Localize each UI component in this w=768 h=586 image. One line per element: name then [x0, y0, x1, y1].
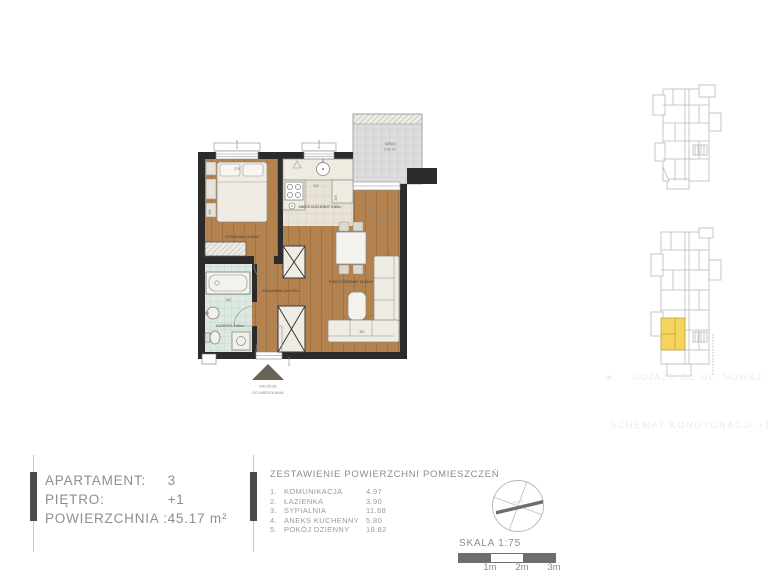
row-no: 3.	[270, 506, 284, 516]
entrance-arrow-icon	[252, 364, 284, 380]
row-no: 5.	[270, 525, 284, 535]
scale-bar	[458, 553, 556, 563]
dim-bedroom-w: 275	[234, 167, 240, 171]
terrace-area-label: 3.50 m²	[384, 148, 397, 152]
nightstands	[206, 162, 216, 217]
row-name: ŁAZIENKA	[284, 497, 366, 507]
row-name: KOMUNIKACJA	[284, 487, 366, 497]
info-row-apartment: APARTAMENT: 3	[45, 471, 227, 490]
info-row-area: POWIERZCHNIA : 45.17 m²	[45, 509, 227, 528]
window-mark-2: 90/150	[317, 139, 321, 149]
scale-seg-3	[523, 554, 555, 562]
dim-living-w: 367	[359, 330, 365, 334]
row-area: 3.90	[366, 497, 499, 507]
bedroom-label: SYPIALNIA 11.68m²	[225, 235, 260, 239]
floor-plan-sheet: TARAS 3.50 m²	[0, 0, 768, 586]
dim-bedroom-h: 409	[208, 209, 212, 215]
scale-tick-2m: 2m	[515, 562, 528, 573]
window-mark-1: 90/150	[235, 139, 239, 149]
terrace-label: TARAS	[384, 142, 396, 146]
kitchen-label: ANEKS KUCHENNY 5.80m²	[299, 205, 343, 209]
floor-value: +1	[168, 490, 185, 509]
area-value: 45.17 m²	[168, 509, 228, 528]
dim-living-h: 577	[387, 251, 391, 257]
table-row: 1. KOMUNIKACJA 4.97	[270, 487, 499, 497]
scale-tick-1m: 1m	[483, 562, 496, 573]
apartment-value: 3	[168, 471, 176, 490]
apartment-label: APARTAMENT:	[45, 471, 163, 490]
street-access-note: ◄ DOJAZD DO UL. NOWEJ	[604, 372, 762, 382]
living-label: POKÓJ DZIENNY 18.82m²	[329, 279, 374, 284]
areas-table-title: ZESTAWIENIE POWIERZCHNI POMIESZCZEŃ	[270, 469, 499, 480]
table-row: 2. ŁAZIENKA 3.90	[270, 497, 499, 507]
divider-bar-mid	[250, 472, 257, 521]
schematic-caption: SCHEMAT KONDYGNACJI +1	[610, 420, 768, 431]
row-area: 5.80	[366, 516, 499, 526]
key-plan-lower	[641, 226, 729, 380]
row-area: 18.82	[366, 525, 499, 535]
row-area: 4.97	[366, 487, 499, 497]
table-row: 3. SYPIALNIA 11.68	[270, 506, 499, 516]
dim-kitchen-w: 343	[313, 184, 319, 188]
hall-wardrobe-upper	[283, 246, 305, 278]
entrance-label-2: DO MIESZKANIA	[252, 390, 284, 395]
bedroom-wardrobe	[205, 242, 246, 256]
key-plan-upper	[643, 83, 729, 195]
apartment-info: APARTAMENT: 3 PIĘTRO: +1 POWIERZCHNIA : …	[45, 471, 227, 528]
areas-table: ZESTAWIENIE POWIERZCHNI POMIESZCZEŃ 1. K…	[270, 469, 499, 535]
table-row: 4. ANEKS KUCHENNY 5.80	[270, 516, 499, 526]
dim-kitchen-h: 243	[334, 195, 338, 201]
area-label: POWIERZCHNIA :	[45, 509, 163, 528]
north-label: PÓŁNOC	[511, 498, 525, 506]
coffee-table	[348, 292, 366, 320]
entrance-label-1: WEJŚCIE	[259, 384, 277, 389]
scale-seg-2	[491, 554, 523, 562]
entry-mark: 90/210	[287, 356, 291, 366]
street-arrow-icon: ◄	[604, 372, 614, 382]
row-no: 4.	[270, 516, 284, 526]
divider-bar-left	[30, 472, 37, 521]
row-area: 11.68	[366, 506, 499, 516]
scale-tick-3m: 3m	[547, 562, 560, 573]
row-name: SYPIALNIA	[284, 506, 366, 516]
washing-machine	[232, 332, 250, 350]
scale-label: SKALA 1:75	[459, 538, 521, 549]
info-row-floor: PIĘTRO: +1	[45, 490, 227, 509]
bed	[217, 162, 267, 222]
toilet	[205, 331, 220, 344]
row-name: POKÓJ DZIENNY	[284, 525, 366, 535]
bathroom-label: ŁAZIENKA 3.90m²	[216, 324, 245, 328]
table-row: 5. POKÓJ DZIENNY 18.82	[270, 525, 499, 535]
floor-label: PIĘTRO:	[45, 490, 163, 509]
row-no: 2.	[270, 497, 284, 507]
scale-seg-1	[459, 554, 491, 562]
row-name: ANEKS KUCHENNY	[284, 516, 366, 526]
row-no: 1.	[270, 487, 284, 497]
bathtub	[206, 272, 250, 294]
street-note-text: DOJAZD DO UL. NOWEJ	[632, 372, 762, 382]
dim-bath-w: 155	[225, 298, 231, 302]
shaft	[202, 354, 216, 364]
floor-plan: TARAS 3.50 m²	[190, 106, 450, 406]
hall-label: KOMUNIKACJA 4.97m²	[263, 289, 301, 293]
compass-icon: PÓŁNOC	[482, 470, 554, 542]
